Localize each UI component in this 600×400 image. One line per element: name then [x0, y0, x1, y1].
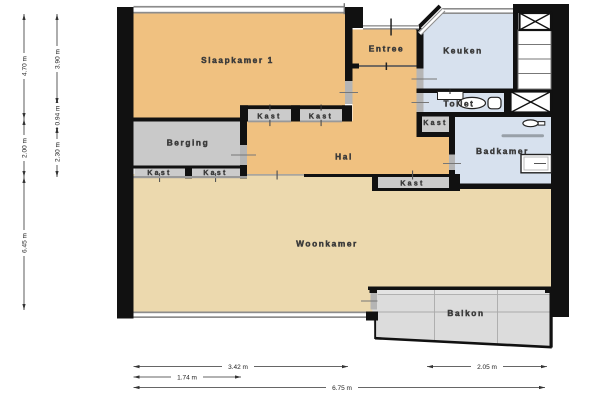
svg-text:Kast: Kast — [203, 170, 227, 177]
svg-text:0.94 m: 0.94 m — [54, 106, 61, 126]
svg-text:Hal: Hal — [335, 152, 353, 162]
svg-text:Kast: Kast — [257, 113, 281, 120]
svg-text:1.74 m: 1.74 m — [177, 374, 197, 381]
svg-text:Slaapkamer 1: Slaapkamer 1 — [201, 55, 274, 65]
svg-text:Kast: Kast — [423, 120, 447, 127]
svg-text:Entree: Entree — [369, 44, 404, 54]
svg-text:Kast: Kast — [400, 181, 424, 188]
svg-text:4.70 m: 4.70 m — [21, 56, 28, 76]
svg-text:Woonkamer: Woonkamer — [296, 239, 358, 249]
svg-text:Kast: Kast — [147, 170, 171, 177]
svg-text:2.30 m: 2.30 m — [54, 142, 61, 162]
svg-text:Toilet: Toilet — [443, 98, 474, 108]
svg-text:Kast: Kast — [309, 113, 333, 120]
svg-text:3.90 m: 3.90 m — [54, 49, 61, 69]
svg-text:2.00 m: 2.00 m — [21, 138, 28, 158]
svg-text:Berging: Berging — [167, 138, 210, 148]
svg-text:Badkamer: Badkamer — [476, 146, 529, 156]
svg-text:6.45 m: 6.45 m — [21, 233, 28, 253]
svg-text:3.42 m: 3.42 m — [228, 364, 248, 371]
svg-text:Balkon: Balkon — [447, 308, 484, 318]
svg-text:Keuken: Keuken — [443, 46, 483, 56]
svg-text:2.05 m: 2.05 m — [477, 364, 497, 371]
svg-text:6.75 m: 6.75 m — [332, 385, 352, 392]
